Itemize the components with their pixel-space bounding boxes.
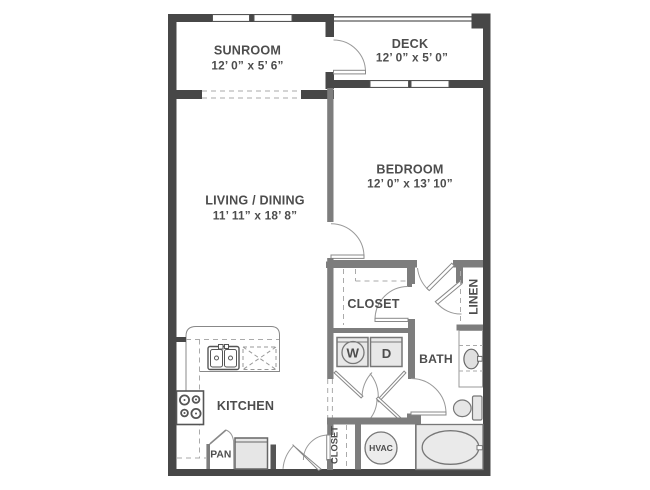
svg-text:D: D bbox=[382, 346, 392, 361]
svg-text:HVAC: HVAC bbox=[369, 443, 393, 453]
svg-text:12’ 0” x 5’ 0”: 12’ 0” x 5’ 0” bbox=[376, 50, 448, 64]
svg-text:DECK: DECK bbox=[392, 37, 428, 51]
svg-text:LINEN: LINEN bbox=[467, 279, 481, 315]
svg-text:KITCHEN: KITCHEN bbox=[217, 399, 274, 413]
svg-text:12’ 0” x 13’ 10”: 12’ 0” x 13’ 10” bbox=[367, 176, 453, 190]
svg-text:SUNROOM: SUNROOM bbox=[214, 44, 281, 58]
svg-text:PAN: PAN bbox=[210, 449, 231, 460]
svg-text:11’ 11” x 18’ 8”: 11’ 11” x 18’ 8” bbox=[213, 208, 298, 222]
svg-text:W: W bbox=[346, 345, 359, 360]
svg-text:12’ 0” x 5’ 6”: 12’ 0” x 5’ 6” bbox=[211, 59, 283, 73]
svg-text:BEDROOM: BEDROOM bbox=[376, 163, 443, 177]
svg-text:BATH: BATH bbox=[419, 352, 453, 366]
svg-text:CLOSET: CLOSET bbox=[347, 297, 399, 311]
svg-text:CLOSET: CLOSET bbox=[329, 426, 340, 464]
svg-text:LIVING / DINING: LIVING / DINING bbox=[205, 193, 305, 207]
